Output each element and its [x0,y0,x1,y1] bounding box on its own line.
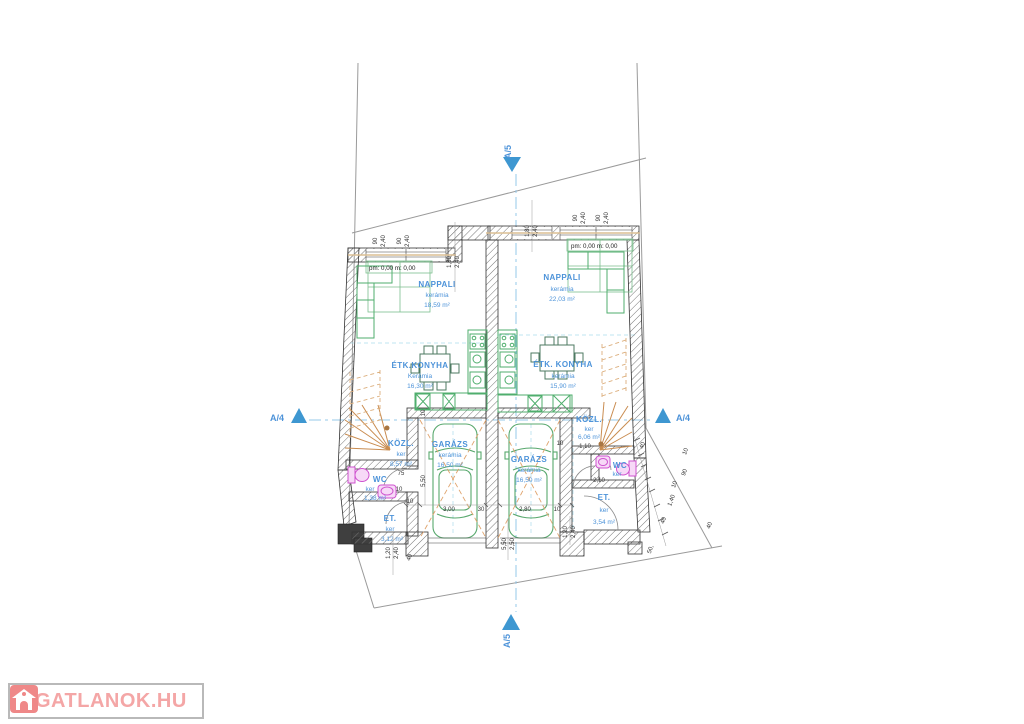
svg-text:ker: ker [584,426,594,433]
dim-text: 1,20 [386,547,392,559]
section-label-a4-left: A/4 [270,413,284,423]
svg-text:3,54 m²: 3,54 m² [593,519,616,526]
svg-text:1,38 m²: 1,38 m² [364,495,387,502]
svg-text:KÖZL.: KÖZL. [576,415,602,424]
dim-text: 50, [647,544,656,554]
dim-text: 10 [421,409,427,416]
room-label-et-left: ET. ker 3,12 m² [381,514,404,543]
room-label-garazs-left: GARÁZS kerámia 16,50 m² [432,440,468,469]
dim-text: 90 [397,237,403,244]
svg-text:6,06 m²: 6,06 m² [578,434,601,441]
svg-text:3,12 m²: 3,12 m² [381,536,404,543]
svg-text:ÉTK.KONYHA: ÉTK.KONYHA [392,361,449,370]
property-boundary [349,63,722,608]
dim-text: 5,50 [502,538,508,550]
dim-text: 10 [396,487,403,493]
svg-text:ET.: ET. [384,514,397,523]
svg-text:WC: WC [373,475,387,484]
room-label-nappali-left: NAPPALI kerámia 18,59 m² [418,280,455,309]
house-icon [10,685,38,713]
dim-text: 10 [554,507,561,513]
section-arrow-a5-bottom [502,614,520,630]
dim-text: 2,10 [593,478,605,484]
dim-text: 10 [682,447,690,456]
dim-text: 2,40 [405,235,411,247]
section-arrow-a4-left [291,408,307,423]
svg-text:8,57 m²: 8,57 m² [390,461,413,468]
section-label-a5-bottom: A/5 [502,634,512,648]
svg-text:ÉTK. KONYHA: ÉTK. KONYHA [533,360,593,369]
ingatlanok-logo[interactable]: INGATLANOK.HU [8,683,204,719]
room-label-konyha-right: ÉTK. KONYHA kerámia 15,90 m² [533,360,593,390]
dim-text: 40 [706,521,714,530]
dim-text: 1,20 [563,526,569,538]
svg-text:kerámia: kerámia [438,452,462,459]
svg-text:WC: WC [613,461,627,470]
dim-text: 1,80 [525,225,531,237]
svg-text:NAPPALI: NAPPALI [543,273,580,282]
dim-text: 10 [671,480,679,489]
room-label-kozl-right: KÖZL. ker 6,06 m² [576,415,602,441]
svg-text:16,30 m²: 16,30 m² [407,383,433,390]
dim-text: 2,40 [381,235,387,247]
dim-text: 90 [573,214,579,221]
svg-text:ker: ker [396,451,406,458]
svg-text:16,50 m²: 16,50 m² [516,477,542,484]
dim-text: 2,40 [571,526,577,538]
svg-text:ker: ker [599,507,609,514]
dim-text: 2,40 [455,256,461,268]
svg-text:GARÁZS: GARÁZS [511,455,547,464]
dim-text: 90 [373,237,379,244]
svg-text:ker: ker [385,526,395,533]
svg-text:18,59 m²: 18,59 m² [424,302,450,309]
svg-text:GARÁZS: GARÁZS [432,440,468,449]
sofa-right [568,252,624,313]
dim-text: 90 [596,214,602,221]
section-label-a4-right: A/4 [676,413,690,423]
logo-brand-text: INGATLANOK.HU [14,690,187,713]
svg-text:ET.: ET. [598,493,611,502]
svg-text:16,50 m²: 16,50 m² [437,462,463,469]
dim-text: 1,10 [579,444,591,450]
section-arrow-a4-right [655,408,671,423]
section-label-a5-top: A/5 [503,145,513,159]
svg-text:kerámia: kerámia [550,286,574,293]
sofa-left [357,266,392,338]
dim-text: 2,80 [519,507,531,513]
svg-text:KÖZL.: KÖZL. [388,439,414,448]
room-label-garazs-right: GARÁZS kerámia 16,50 m² [511,455,547,484]
section-lines: A/5 A/5 A/4 A/4 [270,145,690,648]
svg-text:kerámia: kerámia [425,292,449,299]
dim-text: 10 [557,441,564,447]
level-mark-right: pm: 0,00 m: 0,00 [571,243,618,250]
dim-text: 90 [681,468,689,477]
svg-text:Kerámia: Kerámia [408,373,433,380]
stairs-right [599,338,633,450]
dim-text: 2,40 [604,212,610,224]
dim-text: 2,40 [533,225,539,237]
level-mark-left: pm: 0,00 m: 0,00 [369,265,416,272]
dim-text: 1,40 [667,494,677,508]
dim-text: 30 [478,507,485,513]
dim-text: 2,40 [581,212,587,224]
svg-text:15,90 m²: 15,90 m² [550,383,576,390]
svg-text:kerámia: kerámia [517,467,541,474]
dim-text: 40 [660,516,668,525]
floor-plan-page: A/5 A/5 A/4 A/4 [0,0,1024,724]
room-label-wc-right: WC ker [612,461,627,478]
floor-plan-canvas: A/5 A/5 A/4 A/4 [0,0,1024,724]
svg-text:kerámia: kerámia [551,373,575,380]
svg-text:ker: ker [365,486,375,493]
dim-text: 3,00 [443,507,455,513]
dim-text: 10 [407,499,414,505]
dim-text: 5,50 [421,475,427,487]
dim-text: 2,40 [394,547,400,559]
dim-text: 1,80 [447,256,453,268]
room-label-nappali-right: NAPPALI kerámia 22,03 m² [543,273,580,303]
svg-text:ker: ker [612,471,622,478]
svg-text:22,03 m²: 22,03 m² [549,296,575,303]
svg-text:NAPPALI: NAPPALI [418,280,455,289]
dim-text: 2,50 [510,538,516,550]
dim-text: 75 [398,471,405,477]
